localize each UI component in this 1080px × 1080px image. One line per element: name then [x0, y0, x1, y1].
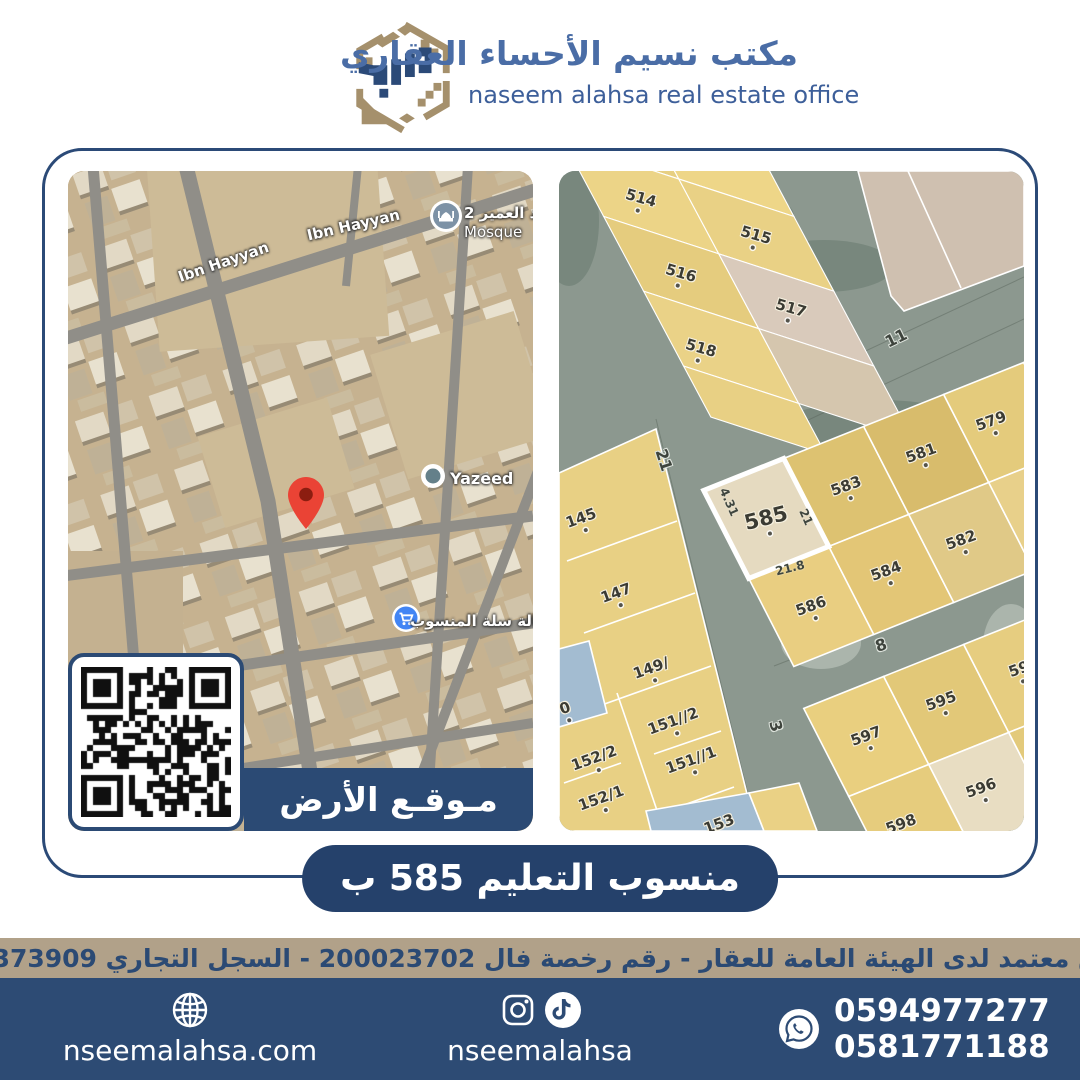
location-pin-icon — [288, 477, 324, 533]
education-level-text: منسوب التعليم 585 ب — [340, 858, 740, 899]
phone-number-2: 0581771188 — [834, 1029, 1050, 1065]
footer-website: nseemalahsa.com — [60, 978, 320, 1080]
poi-label-grocery: بقالة سلة المنسوب — [424, 612, 533, 630]
phone-number-1: 0594977277 — [834, 993, 1050, 1029]
parcel-basemap — [559, 171, 1024, 831]
poi-dot-icon — [420, 463, 446, 493]
satellite-map: Ibn Hayyan Ibn Hayyan مسجد العمير 2 Mosq… — [68, 171, 533, 831]
mosque-label-arabic: مسجد العمير 2 — [464, 204, 533, 222]
brand-title-arabic: مكتب نسيم الأحساء العقاري — [468, 34, 798, 73]
flyer-page: مكتب نسيم الأحساء العقاري naseem alahsa … — [0, 0, 1080, 1080]
license-bar: مسوق معتمد لدى الهيئة العامة للعقار - رق… — [0, 938, 1080, 978]
qr-code-pattern — [81, 667, 231, 817]
social-handle: nseemalahsa — [447, 1034, 633, 1067]
mosque-icon — [428, 198, 464, 238]
brand-title-english: naseem alahsa real estate office — [468, 81, 798, 109]
instagram-icon — [499, 991, 537, 1029]
footer: nseemalahsa.com nseemalahsa — [0, 978, 1080, 1080]
education-level-banner: منسوب التعليم 585 ب — [302, 845, 778, 912]
mosque-label-english: Mosque — [464, 223, 522, 241]
flyer-card: Ibn Hayyan Ibn Hayyan مسجد العمير 2 Mosq… — [42, 148, 1038, 878]
footer-contact: 0594977277 0581771188 — [778, 978, 1050, 1080]
poi-label-yazeed: Yazeed — [450, 469, 513, 488]
footer-social: nseemalahsa — [420, 978, 660, 1080]
globe-icon — [170, 990, 210, 1030]
license-text: مسوق معتمد لدى الهيئة العامة للعقار - رق… — [0, 944, 1080, 973]
qr-code — [68, 653, 244, 831]
brand-header: مكتب نسيم الأحساء العقاري naseem alahsa … — [0, 0, 1080, 148]
parcel-map: 514 515 516 517 518 579 581 583 582 584 … — [559, 171, 1024, 831]
whatsapp-icon — [778, 1008, 820, 1050]
tiktok-icon — [544, 991, 582, 1029]
website-url: nseemalahsa.com — [63, 1034, 317, 1067]
land-location-tag: مـوقـع الأرض — [244, 768, 533, 831]
